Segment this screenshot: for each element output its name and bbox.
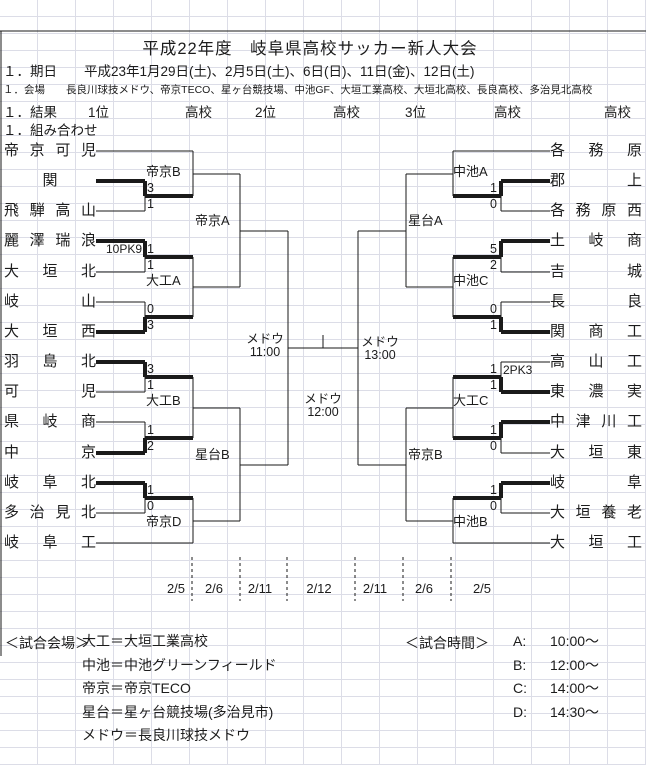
team-name-char: 岐 [4,475,19,491]
team-name: 各務原西 [550,203,642,219]
match-score: 0 [475,439,497,453]
team-name-char: 上 [627,173,642,189]
team-name-char: 各 [550,203,565,219]
match-score: 3 [147,181,169,195]
team-name: 岐阜 [550,475,642,491]
team-name-char: 垣 [588,445,603,461]
match-score: 1 [147,242,169,256]
team-name-char: 可 [4,384,19,400]
team-name-char: 関 [42,173,57,189]
team-name-char: 山 [81,294,96,310]
team-name-char: 工 [81,535,96,551]
team-name-char: 垣 [42,324,57,340]
team-name-char: 治 [30,505,45,521]
match-venue-label: 大工A [146,274,196,288]
team-name-char: 大 [550,505,565,521]
result-label: １．結果 [3,101,57,121]
team-name-char: 阜 [42,535,57,551]
semifinal-left-time: 11:00 [244,346,286,359]
legend-time-slot: B: [513,657,526,673]
venue-legend-label: ＜試合会場＞ [5,633,89,653]
result-item: 高校 [604,101,631,121]
pairing-label: １．組み合わせ [3,119,98,139]
team-name-char: 工 [627,414,642,430]
team-name-char: 大 [4,264,19,280]
team-name-char: 西 [627,203,642,219]
team-name-char: 京 [81,445,96,461]
team-name-char: 羽 [4,354,19,370]
team-name-char: 岐 [4,294,19,310]
match-score: 1 [147,378,169,392]
team-name-char: 大 [550,535,565,551]
final-label: メドウ 12:00 [300,393,346,419]
team-name-char: 吉 [550,264,565,280]
team-name-char: 工 [627,354,642,370]
round3-venue-label: 帝京A [195,214,239,228]
match-venue-label: 帝京B [146,165,196,179]
final-time: 12:00 [300,406,346,419]
team-name-char: 各 [550,143,565,159]
semifinal-left-label: メドウ 11:00 [244,333,286,359]
team-name-char: 岐 [550,475,565,491]
team-name-char: 原 [627,143,642,159]
team-name-char: 商 [588,324,603,340]
team-name-char: 原 [601,203,616,219]
team-name: 高山工 [550,354,642,370]
team-name-char: 可 [55,143,70,159]
team-name: 羽島北 [4,354,96,370]
team-name: 関 [4,173,96,189]
team-name-char: 県 [4,414,19,430]
team-name-char: 北 [81,475,96,491]
legend-venue-item: 中池＝中池グリーンフィールド [82,657,277,673]
team-name-char: 東 [550,384,565,400]
team-name-char: 阜 [42,475,57,491]
match-score: 0 [475,499,497,513]
match-venue-label: 中池C [453,274,503,288]
match-score: 1 [147,197,169,211]
match-date: 2/12 [299,581,339,596]
match-venue-label: 中池A [453,165,503,179]
match-score: 5 [475,242,497,256]
result-item: 高校 [333,101,360,121]
team-name: 大垣北 [4,264,96,280]
match-score: 2 [147,439,169,453]
team-name-char: 阜 [627,475,642,491]
team-name: 吉城 [550,264,642,280]
team-name: 岐阜北 [4,475,96,491]
round3-venue-label: 星台A [408,214,452,228]
match-venue-label: 大工C [453,394,503,408]
match-date: 2/5 [462,581,502,596]
match-score: 0 [147,499,169,513]
team-name-char: 高 [55,203,70,219]
team-name-char: 津 [576,414,591,430]
match-score: 3 [147,362,169,376]
team-name-char: 務 [576,203,591,219]
team-name: 東濃実 [550,384,642,400]
bracket-sheet: 平成22年度 岐阜県高校サッカー新人大会 １．期日 平成23年1月29日(土)、… [0,0,646,765]
team-name-char: 高 [550,354,565,370]
legend-venue-item: 星台＝星ヶ台競技場(多治見市) [82,704,273,720]
team-name-char: 騨 [30,203,45,219]
team-name-char: 北 [81,505,96,521]
match-venue-label: 帝京D [146,515,196,529]
team-name-char: 長 [550,294,565,310]
team-name-char: 麗 [4,233,19,249]
team-name: 大垣東 [550,445,642,461]
team-name-char: 垣 [42,264,57,280]
team-name-char: 島 [42,354,57,370]
team-name: 帝京可児 [4,143,96,159]
round3-venue-label: 帝京B [408,448,452,462]
match-date: 2/11 [240,581,280,596]
team-name-char: 垣 [588,535,603,551]
team-name: 郡上 [550,173,642,189]
match-score: 1 [475,378,497,392]
team-name-char: 北 [81,264,96,280]
team-name: 中京 [4,445,96,461]
match-date: 2/6 [404,581,444,596]
team-name-char: 児 [81,384,96,400]
legend-time-item: 14:30～ [550,704,599,720]
team-name-char: 山 [81,203,96,219]
legend-time-slot: A: [513,633,526,649]
team-name-char: 西 [81,324,96,340]
schedule-line: １．期日 平成23年1月29日(土)、2月5日(土)、6日(日)、11日(金)、… [3,60,475,80]
team-name: 県岐商 [4,414,96,430]
team-name-char: 濃 [588,384,603,400]
match-score: 1 [475,181,497,195]
team-name-char: 実 [627,384,642,400]
match-date: 2/5 [156,581,196,596]
match-score: 0 [147,302,169,316]
team-name-char: 帝 [4,143,19,159]
team-name-char: 工 [627,535,642,551]
team-name-char: 京 [30,143,45,159]
legend-venue-item: メドウ＝長良川球技メドウ [82,727,250,743]
team-name: 関商工 [550,324,642,340]
team-name-char: 土 [550,233,565,249]
team-name-char: 岐 [588,233,603,249]
result-item: 高校 [185,101,212,121]
team-name-char: 澤 [30,233,45,249]
result-item: 3位 [405,101,426,121]
pk-score-label: 10PK9 [95,243,142,256]
team-name: 麗澤瑞浪 [4,233,96,249]
team-name-char: 浪 [81,233,96,249]
match-score: 1 [475,423,497,437]
team-name-char: 垣 [576,505,591,521]
page-title: 平成22年度 岐阜県高校サッカー新人大会 [0,35,620,59]
result-item: 高校 [494,101,521,121]
team-name-char: 北 [81,354,96,370]
team-name-char: 岐 [4,535,19,551]
team-name-char: 城 [627,264,642,280]
semifinal-right-time: 13:00 [359,349,401,362]
match-date: 2/6 [194,581,234,596]
legend-time-item: 14:00～ [550,680,599,696]
team-name-char: 東 [627,445,642,461]
team-name-char: 商 [627,233,642,249]
team-name-char: 関 [550,324,565,340]
match-score: 1 [475,483,497,497]
team-name-char: 養 [601,505,616,521]
team-name: 可児 [4,384,96,400]
match-score: 0 [475,197,497,211]
legend-time-item: 10:00～ [550,633,599,649]
semifinal-right-label: メドウ 13:00 [359,336,401,362]
team-name-char: 見 [55,505,70,521]
team-name: 飛騨高山 [4,203,96,219]
match-date: 2/11 [355,581,395,596]
pk-score-label: 2PK3 [503,364,550,377]
team-name: 各務原 [550,143,642,159]
match-score: 2 [475,258,497,272]
legend-time-slot: C: [513,680,527,696]
venue-line: １．会場 長良川球技メドウ、帝京TECO、星ヶ台競技場、中池GF、大垣工業高校、… [3,82,592,97]
team-name-char: 大 [4,324,19,340]
team-name: 大垣養老 [550,505,642,521]
team-name-char: 中 [550,414,565,430]
team-name-char: 大 [550,445,565,461]
round3-venue-label: 星台B [195,448,239,462]
match-score: 1 [475,318,497,332]
legend-venue-item: 大工＝大垣工業高校 [82,633,208,649]
team-name-char: 瑞 [55,233,70,249]
team-name-char: 老 [627,505,642,521]
team-name-char: 中 [4,445,19,461]
team-name-char: 郡 [550,173,565,189]
match-venue-label: 大工B [146,394,196,408]
team-name-char: 山 [588,354,603,370]
team-name: 長良 [550,294,642,310]
team-name: 土岐商 [550,233,642,249]
match-score: 1 [147,258,169,272]
result-item: 1位 [88,101,109,121]
team-name-char: 多 [4,505,19,521]
team-name: 多治見北 [4,505,96,521]
team-name-char: 飛 [4,203,19,219]
team-name-char: 商 [81,414,96,430]
team-name-char: 川 [601,414,616,430]
team-name-char: 岐 [42,414,57,430]
match-score: 3 [147,318,169,332]
team-name: 岐阜工 [4,535,96,551]
match-score: 1 [475,362,497,376]
team-name: 岐山 [4,294,96,310]
legend-time-item: 12:00～ [550,657,599,673]
team-name-char: 良 [627,294,642,310]
match-score: 1 [147,483,169,497]
match-venue-label: 中池B [453,515,503,529]
team-name-char: 工 [627,324,642,340]
team-name: 大垣西 [4,324,96,340]
time-legend-label: ＜試合時間＞ [405,633,489,653]
legend-venue-item: 帝京＝帝京TECO [82,680,191,696]
team-name-char: 児 [81,143,96,159]
result-item: 2位 [255,101,276,121]
team-name: 大垣工 [550,535,642,551]
legend-time-slot: D: [513,704,527,720]
team-name: 中津川工 [550,414,642,430]
match-score: 0 [475,302,497,316]
match-score: 1 [147,423,169,437]
team-name-char: 務 [588,143,603,159]
